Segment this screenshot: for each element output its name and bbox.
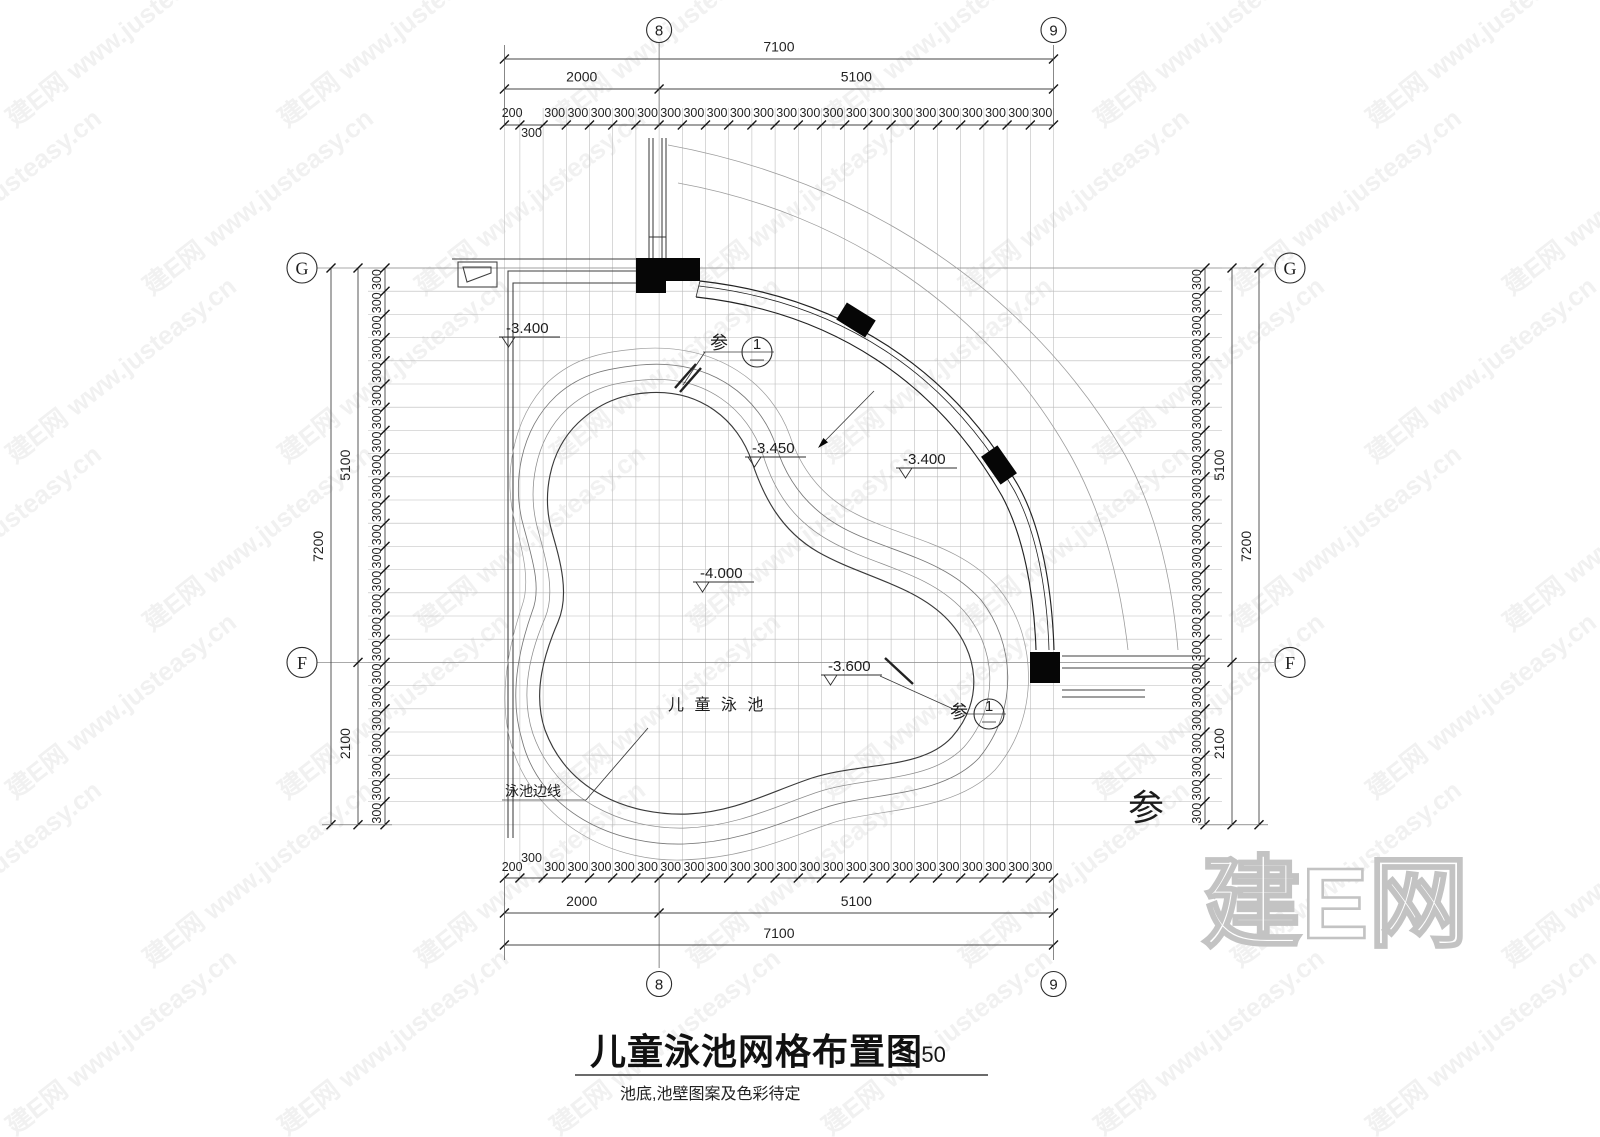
watermark-tile: 建E网 www.justeasy.cn: [1225, 439, 1467, 637]
dim-label: 300: [660, 860, 681, 874]
dim-label: 300: [370, 455, 384, 476]
dim-label: 300: [1190, 780, 1204, 801]
dim-label: 300: [1190, 408, 1204, 429]
dim-label: 300: [1190, 594, 1204, 615]
dim-label: 300: [370, 524, 384, 545]
dim-label: 300: [707, 860, 728, 874]
watermark-tile: 建E网 www.justeasy.cn: [681, 439, 923, 637]
dim-label: 200: [502, 860, 523, 874]
dim-label: 5100: [1211, 449, 1227, 480]
dim-label: 300: [1190, 269, 1204, 290]
dim-label: 300: [915, 106, 936, 120]
drawing-scale: 1:50: [903, 1042, 946, 1067]
dim-label: 300: [1190, 640, 1204, 661]
dim-label: 300: [939, 106, 960, 120]
dim-label: 300: [370, 339, 384, 360]
dim-label: 300: [614, 106, 635, 120]
watermark-tile: 建E网 www.justeasy.cn: [1088, 943, 1330, 1137]
dim-label: 300: [869, 860, 890, 874]
axis-letter-f-left: F: [297, 653, 307, 673]
dim-label: 300: [370, 501, 384, 522]
cad-drawing-svg: 建E网 www.justeasy.cn建E网 www.justeasy.cn建E…: [0, 0, 1600, 1137]
dim-label: 2000: [566, 893, 597, 909]
dim-label: 300: [370, 385, 384, 406]
watermark-tile: 建E网 www.justeasy.cn: [272, 607, 514, 805]
dim-label: 300: [370, 571, 384, 592]
dim-label: 300: [799, 106, 820, 120]
dim-label: 2000: [566, 69, 597, 85]
axis-letter-g-right: G: [1284, 259, 1297, 279]
watermark-tile: 建E网 www.justeasy.cn: [0, 271, 242, 469]
dim-label: 300: [1031, 860, 1052, 874]
dim-label: 300: [892, 106, 913, 120]
dim-label: 300: [370, 664, 384, 685]
dim-label: 200: [502, 106, 523, 120]
watermark-tile: 建E网 www.justeasy.cn: [1360, 607, 1600, 805]
dim-label: 300: [370, 780, 384, 801]
dim-label: 300: [370, 362, 384, 383]
dim-label: 300: [1190, 432, 1204, 453]
dim-label: 300: [637, 860, 658, 874]
elevation-label-5: -3.600: [828, 658, 871, 675]
dim-label: 300: [1190, 524, 1204, 545]
detail-number-bottom: 1: [985, 698, 993, 715]
watermark-tile: 建E网 www.justeasy.cn: [0, 439, 107, 637]
dim-label: 300: [1190, 664, 1204, 685]
watermark-tile: 建E网 www.justeasy.cn: [137, 775, 379, 973]
dim-label: 300: [1190, 339, 1204, 360]
dim-label: 300: [1190, 548, 1204, 569]
dim-label: 300: [962, 106, 983, 120]
dim-label: 300: [521, 126, 542, 140]
dim-label: 300: [962, 860, 983, 874]
axis-markers: 8 9 8 9 G F G F: [287, 18, 1305, 997]
tile-block-band-end: [1030, 652, 1060, 683]
elevation-label-2: -3.450: [752, 440, 795, 457]
wall-top: [649, 138, 666, 258]
dim-label: 300: [823, 860, 844, 874]
ref-char-top: 参: [710, 333, 728, 353]
dim-label: 300: [1190, 292, 1204, 313]
dim-label: 300: [370, 710, 384, 731]
dim-label: 5100: [841, 69, 872, 85]
dim-label: 300: [660, 106, 681, 120]
dim-label: 300: [1190, 455, 1204, 476]
dimension-top: 2003003003003003003003003003003003003003…: [500, 39, 1058, 141]
dim-label: 300: [370, 478, 384, 499]
watermark-tile: 建E网 www.justeasy.cn: [409, 439, 651, 637]
dim-label: 300: [370, 548, 384, 569]
dim-label: 300: [1190, 501, 1204, 522]
watermark-tile: 建E网 www.justeasy.cn: [544, 271, 786, 469]
watermark-tile: 建E网 www.justeasy.cn: [1360, 0, 1600, 133]
dim-label: 300: [567, 860, 588, 874]
dim-label: 300: [823, 106, 844, 120]
dim-label: 300: [1190, 803, 1204, 824]
dim-label: 5100: [841, 893, 872, 909]
dim-label: 300: [370, 733, 384, 754]
axis-letter-f-right: F: [1285, 653, 1295, 673]
dim-label: 300: [776, 860, 797, 874]
elevation-label-3: -3.400: [903, 451, 946, 468]
watermark-tile: 建E网 www.justeasy.cn: [1497, 439, 1600, 637]
big-ref-char: 参: [1128, 787, 1164, 828]
dim-label: 300: [753, 106, 774, 120]
dim-label: 300: [370, 269, 384, 290]
dim-label: 300: [1008, 860, 1029, 874]
watermark-tile: 建E网 www.justeasy.cn: [0, 103, 107, 301]
dim-label: 300: [370, 617, 384, 638]
dim-label: 300: [1190, 571, 1204, 592]
dim-label: 300: [1190, 362, 1204, 383]
grid-number-8-bottom: 8: [655, 977, 663, 994]
elevation-label-4: -4.000: [700, 565, 743, 582]
grid-number-9-bottom: 9: [1049, 977, 1057, 994]
watermark-tile: 建E网 www.justeasy.cn: [0, 943, 242, 1137]
pool-name-label: 儿 童 泳 池: [668, 695, 766, 714]
cad-sheet: 建E网 www.justeasy.cn建E网 www.justeasy.cn建E…: [0, 0, 1600, 1137]
dim-label: 300: [370, 292, 384, 313]
watermark-tile: 建E网 www.justeasy.cn: [1497, 775, 1600, 973]
dim-label: 300: [869, 106, 890, 120]
dim-label: 300: [370, 594, 384, 615]
dim-label: 300: [521, 851, 542, 865]
watermark-tile: 建E网 www.justeasy.cn: [1088, 0, 1330, 133]
dim-label: 300: [1190, 316, 1204, 337]
dim-label: 300: [591, 106, 612, 120]
watermark-tile: 建E网 www.justeasy.cn: [137, 103, 379, 301]
dim-label: 300: [1190, 687, 1204, 708]
dim-label: 300: [370, 687, 384, 708]
dim-label: 300: [544, 860, 565, 874]
dim-label: 300: [1190, 617, 1204, 638]
dim-label: 300: [637, 106, 658, 120]
dim-label: 300: [370, 316, 384, 337]
watermark-tile: 建E网 www.justeasy.cn: [816, 607, 1058, 805]
axis-letter-g-left: G: [296, 259, 309, 279]
watermark-tile: 建E网 www.justeasy.cn: [272, 943, 514, 1137]
watermark-tile: 建E网 www.justeasy.cn: [1088, 271, 1330, 469]
dim-label: 300: [1190, 756, 1204, 777]
dim-label: 300: [1190, 733, 1204, 754]
watermark-tile: 建E网 www.justeasy.cn: [681, 103, 923, 301]
watermark-tile: 建E网 www.justeasy.cn: [1360, 271, 1600, 469]
dim-label: 2100: [337, 728, 353, 759]
dim-label: 300: [370, 803, 384, 824]
dim-label: 300: [1031, 106, 1052, 120]
tile-block-band-1: [836, 303, 875, 338]
elevation-marker: -3.600: [821, 658, 882, 685]
dim-label: 300: [370, 432, 384, 453]
dim-label: 2100: [1211, 728, 1227, 759]
dim-label: 300: [985, 106, 1006, 120]
dim-label: 5100: [337, 449, 353, 480]
dim-label: 300: [683, 860, 704, 874]
ref-char-bottom: 参: [950, 702, 968, 722]
watermark-tile: 建E网 www.justeasy.cn: [272, 271, 514, 469]
dim-label: 7100: [763, 925, 794, 941]
watermark-tile: 建E网 www.justeasy.cn: [816, 271, 1058, 469]
watermark-tile: 建E网 www.justeasy.cn: [0, 0, 242, 133]
watermark-tile: 建E网 www.justeasy.cn: [953, 103, 1195, 301]
watermark-tile: 建E网 www.justeasy.cn: [1360, 943, 1600, 1137]
dim-label: 300: [370, 640, 384, 661]
elevation-label-1: -3.400: [506, 320, 549, 337]
dim-label: 300: [776, 106, 797, 120]
dim-label: 300: [544, 106, 565, 120]
dim-label: 300: [985, 860, 1006, 874]
watermark-tile: 建E网 www.justeasy.cn: [272, 0, 514, 133]
dim-label: 7100: [763, 39, 794, 55]
dim-label: 300: [591, 860, 612, 874]
dim-label: 300: [846, 860, 867, 874]
detail-number-top: 1: [753, 336, 761, 353]
dim-label: 300: [939, 860, 960, 874]
dim-label: 7200: [1238, 531, 1254, 562]
watermark-logo: 建E网: [1202, 848, 1469, 960]
dim-label: 300: [1190, 710, 1204, 731]
dim-label: 300: [1008, 106, 1029, 120]
dim-label: 300: [567, 106, 588, 120]
drawing-note: 池底,池壁图案及色彩待定: [620, 1084, 800, 1103]
watermark-layer: 建E网 www.justeasy.cn建E网 www.justeasy.cn建E…: [0, 0, 1600, 1137]
dim-label: 300: [614, 860, 635, 874]
drawing-title: 儿童泳池网格布置图: [590, 1031, 923, 1072]
dim-label: 300: [753, 860, 774, 874]
tile-block-band-2: [981, 445, 1017, 484]
watermark-tile: 建E网 www.justeasy.cn: [1497, 103, 1600, 301]
dim-label: 300: [370, 756, 384, 777]
grid-number-8-top: 8: [655, 23, 663, 40]
dim-label: 300: [730, 860, 751, 874]
dim-label: 300: [1190, 478, 1204, 499]
dim-label: 300: [846, 106, 867, 120]
dim-label: 300: [730, 106, 751, 120]
watermark-tile: 建E网 www.justeasy.cn: [0, 607, 242, 805]
dim-label: 300: [370, 408, 384, 429]
dim-label: 300: [683, 106, 704, 120]
watermark-tile: 建E网 www.justeasy.cn: [1225, 103, 1467, 301]
dim-label: 300: [1190, 385, 1204, 406]
watermark-tile: 建E网 www.justeasy.cn: [0, 775, 107, 973]
pool-edge-label: 泳池边线: [505, 783, 561, 799]
dim-label: 300: [707, 106, 728, 120]
dim-label: 300: [799, 860, 820, 874]
dim-label: 300: [892, 860, 913, 874]
grid-number-9-top: 9: [1049, 23, 1057, 40]
dim-label: 300: [915, 860, 936, 874]
dim-label: 7200: [310, 531, 326, 562]
